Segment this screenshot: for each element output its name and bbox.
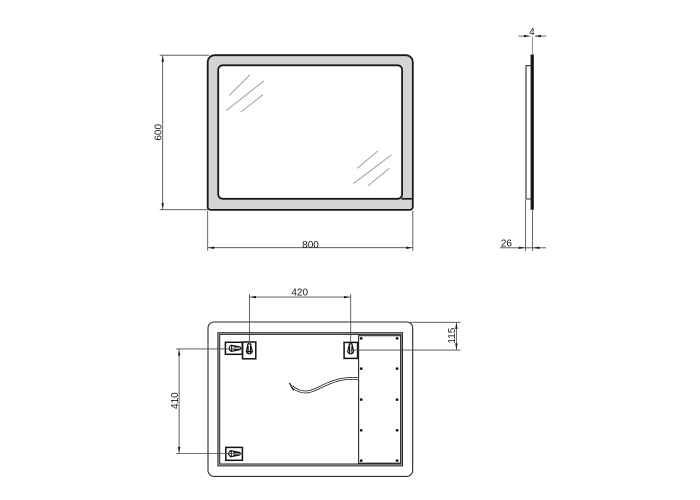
svg-text:26: 26 <box>501 238 513 249</box>
svg-text:4: 4 <box>529 27 535 38</box>
svg-text:600: 600 <box>153 124 164 141</box>
svg-text:800: 800 <box>302 240 319 251</box>
svg-text:420: 420 <box>291 288 308 299</box>
svg-text:410: 410 <box>170 392 181 409</box>
svg-text:115: 115 <box>447 327 458 343</box>
